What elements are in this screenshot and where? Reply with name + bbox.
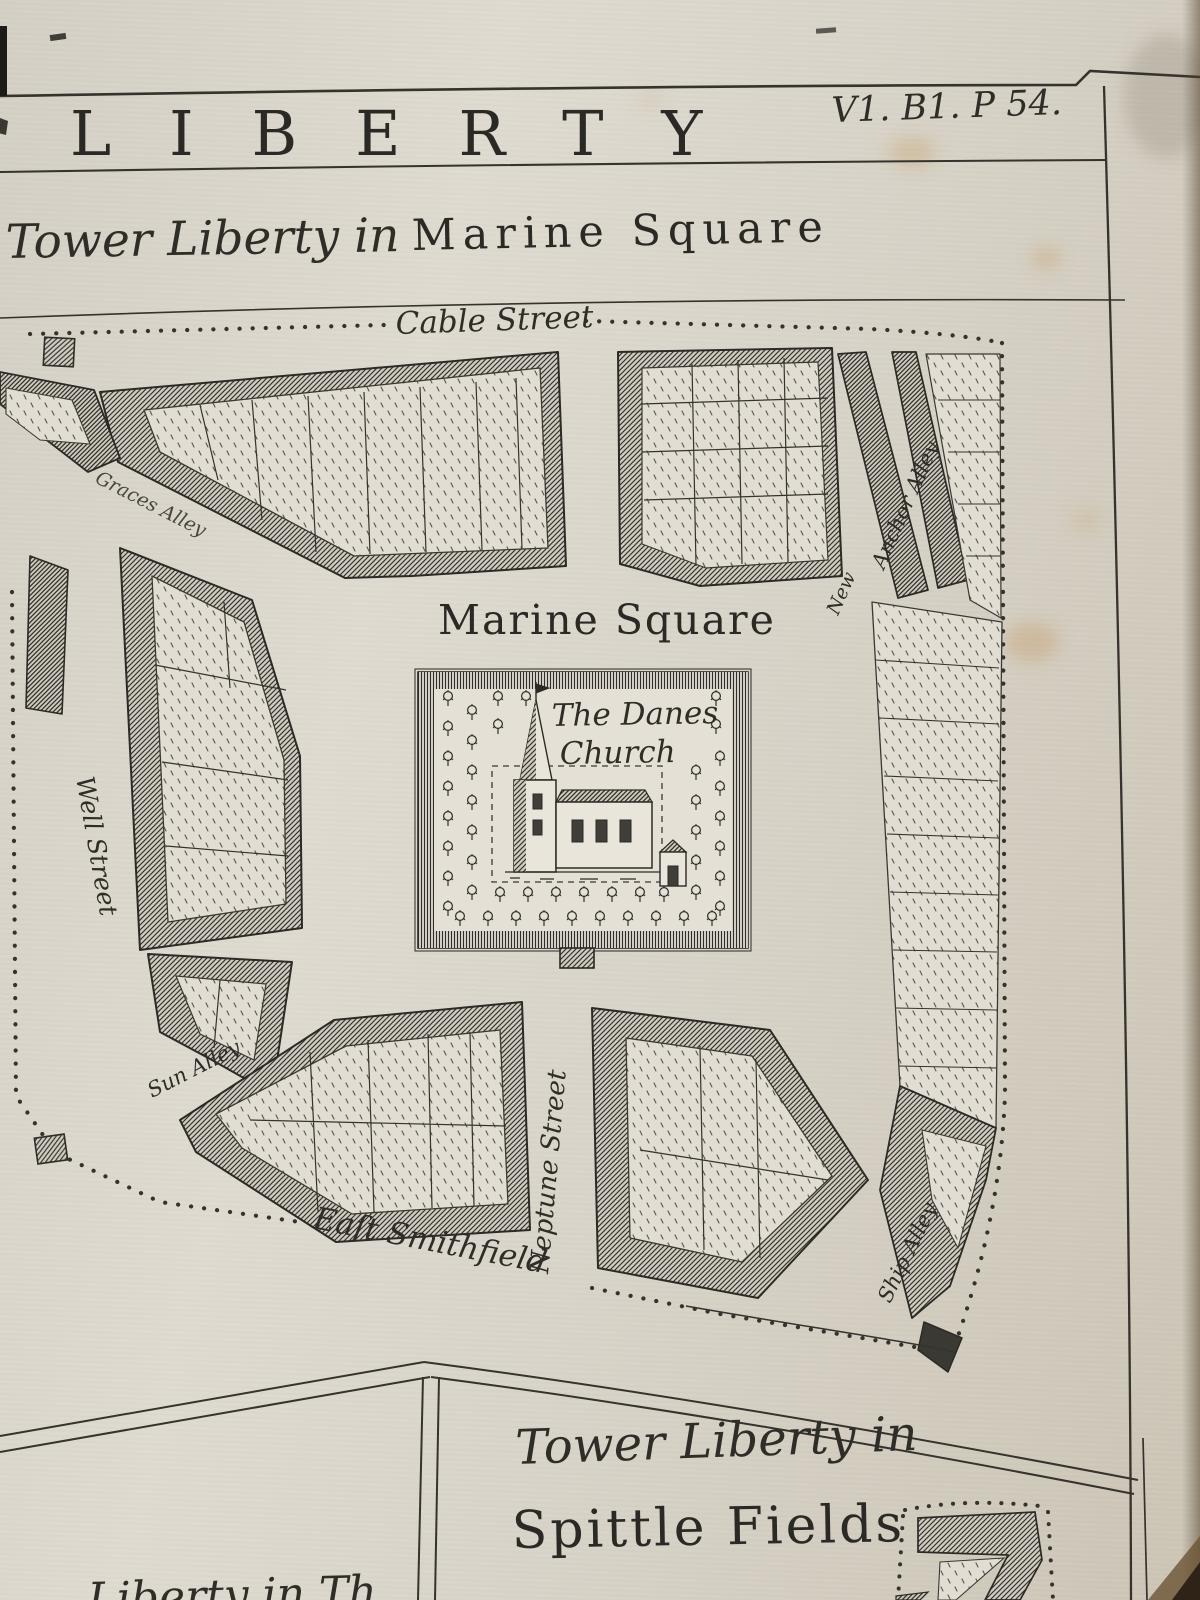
- page-title: LIBERTY: [70, 97, 760, 170]
- block-well-west-strip: [26, 556, 68, 714]
- band-ship-alley-east: [880, 1086, 996, 1372]
- block-southeast: [592, 1008, 868, 1298]
- boundary-mark-sw: [34, 1134, 67, 1164]
- bottom-title-script: Tower Liberty in: [514, 1406, 918, 1476]
- map-subtitle-roman: Marine Square: [411, 202, 830, 261]
- engraving-page: LIBERTY V1. B1. P 54. Tower Liberty in M…: [0, 0, 1200, 1600]
- street-label-cable: Cable Street: [395, 299, 594, 342]
- church-label-line1: The Danes: [552, 695, 719, 734]
- plate-reference: V1. B1. P 54.: [831, 83, 1063, 131]
- boundary-mark-nw: [43, 337, 74, 367]
- block-northwest: [100, 352, 566, 578]
- bottom-title-roman: Spittle Fields: [511, 1494, 905, 1561]
- spittle-fields-block: [896, 1503, 1053, 1600]
- engraved-map: LIBERTY V1. B1. P 54. Tower Liberty in M…: [0, 0, 1200, 1600]
- churchyard-gate: [560, 948, 594, 968]
- map-subtitle-script: Tower Liberty in: [5, 208, 400, 270]
- header: LIBERTY V1. B1. P 54. Tower Liberty in M…: [0, 71, 1200, 270]
- church-label-line2: Church: [560, 734, 676, 772]
- street-label-well: Well Street: [70, 774, 123, 919]
- block-west: [120, 548, 302, 950]
- edge-mark-left: [0, 26, 7, 96]
- block-northeast: [618, 348, 842, 586]
- square-label: Marine Square: [438, 596, 776, 644]
- cut-letter-fragment: [0, 118, 8, 135]
- plots-east-column: [872, 602, 1002, 1128]
- churchyard: The Danes Church: [415, 669, 751, 968]
- bottom-cutoff-text: Liberty in Th: [86, 1566, 377, 1600]
- bottom-section: Tower Liberty in Spittle Fields Liberty …: [0, 1306, 1138, 1600]
- block-graces-west: [0, 372, 120, 472]
